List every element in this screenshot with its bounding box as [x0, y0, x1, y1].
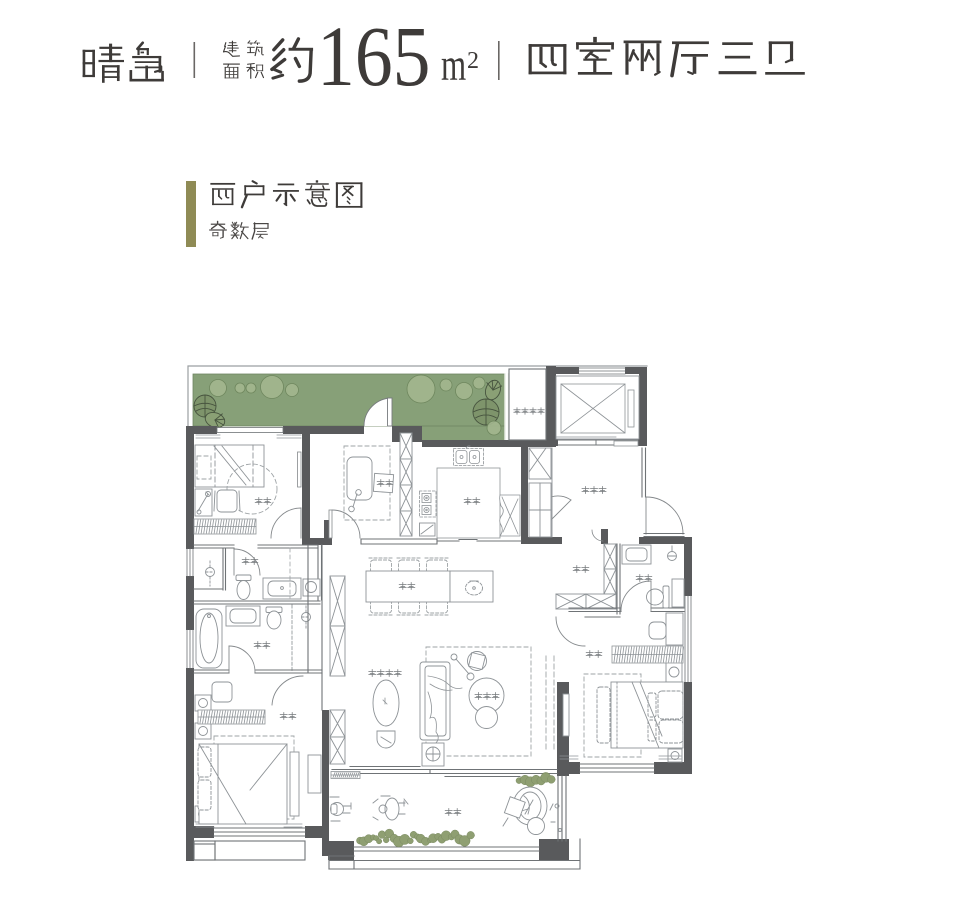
- svg-text:m: m: [441, 41, 466, 90]
- svg-text:165: 165: [317, 9, 431, 105]
- svg-text:2: 2: [467, 48, 479, 74]
